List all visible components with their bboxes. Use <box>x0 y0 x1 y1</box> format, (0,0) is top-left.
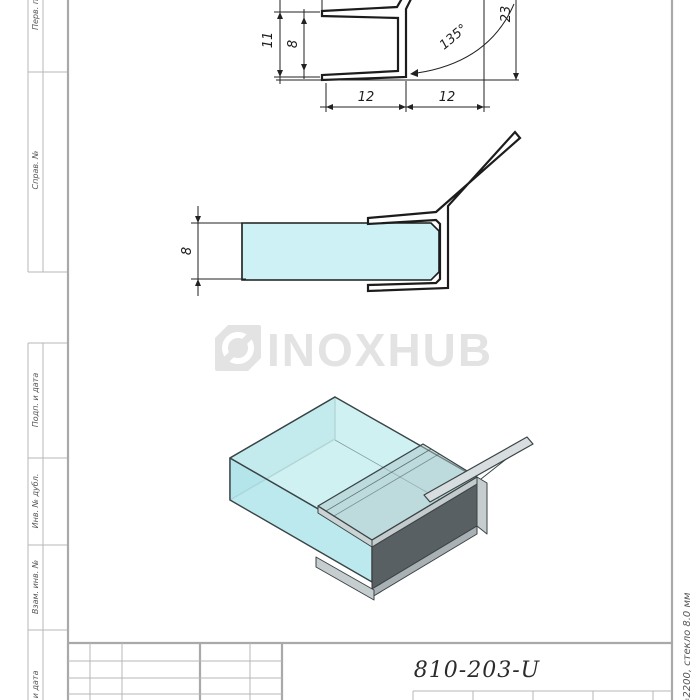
side-view-with-glass: 8 <box>180 132 520 296</box>
stamp-label-perv-primen: Перв. примен. <box>31 0 40 30</box>
arrowhead <box>277 70 283 77</box>
arrowhead <box>277 12 283 19</box>
dim-label-8-side: 8 <box>180 247 195 255</box>
part-designation: 810-203-U <box>414 658 541 683</box>
profile-3d-end-cap <box>477 477 487 534</box>
arrowhead <box>406 104 413 110</box>
inoxhub-logo: INOXHUB <box>215 324 493 376</box>
top-view-cross-section: 11 8 12 12 23 135° <box>261 0 519 112</box>
stamp-label-podp-data-2: Подп. и дата <box>31 670 40 700</box>
inoxhub-logo-icon <box>215 325 261 371</box>
dim-label-135: 135° <box>437 22 471 54</box>
dim-label-11: 11 <box>261 32 276 49</box>
arrowhead <box>195 279 201 286</box>
side-note: =2200, стекло 8.0 мм <box>682 592 693 700</box>
arrowhead <box>301 64 307 71</box>
dim-label-8: 8 <box>286 40 301 48</box>
stamp-label-vzam-inv: Взам. инв. № <box>31 560 40 614</box>
title-block: 810-203-U <box>68 643 672 700</box>
arrowhead <box>410 69 418 77</box>
stamp-label-sprav-no: Справ. № <box>31 151 40 190</box>
glass-panel-side-view <box>242 223 439 280</box>
profile-outline-top-view <box>322 0 413 80</box>
inoxhub-logo-text: INOXHUB <box>267 324 493 376</box>
dim-label-12-left: 12 <box>358 90 375 105</box>
drawing-sheet: 11 8 12 12 23 135° <box>0 0 700 700</box>
stamp-label-inv-dubl: Инв. № дубл. <box>31 474 40 529</box>
dim-label-12-right: 12 <box>439 90 456 105</box>
arrowhead <box>477 104 484 110</box>
arrowhead <box>399 104 406 110</box>
drawing-canvas: 11 8 12 12 23 135° <box>0 0 700 700</box>
arrowhead <box>195 216 201 223</box>
arrowhead <box>301 17 307 24</box>
stamp-label-podp-data: Подп. и дата <box>31 373 40 428</box>
arrowhead <box>513 73 519 80</box>
iso-3d-view <box>230 397 533 600</box>
arrowhead <box>326 104 333 110</box>
